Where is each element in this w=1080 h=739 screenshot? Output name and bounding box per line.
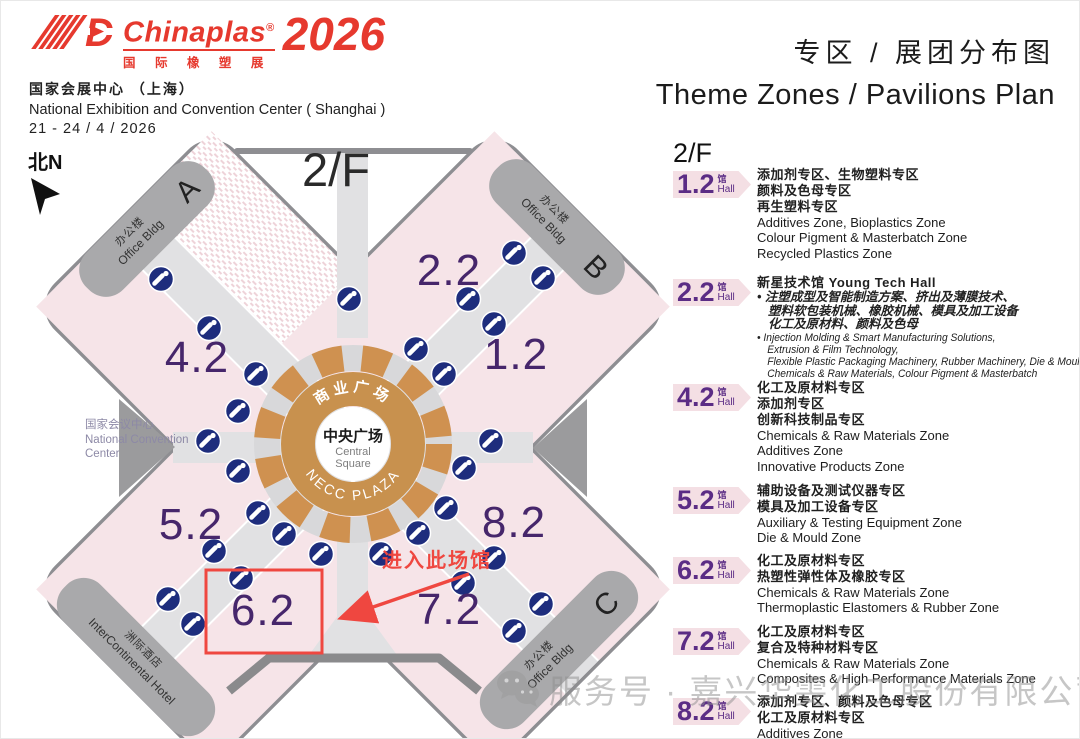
escalator-icon [244, 362, 269, 387]
legend-line: • Injection Molding & Smart Manufacturin… [757, 332, 1064, 344]
hall-number: 4.2 [677, 384, 715, 411]
escalator-icon [432, 362, 457, 387]
hall-unit-zh: 馆 [718, 561, 735, 570]
legend-line: 颜料及色母专区 [757, 183, 1080, 199]
hall-unit-zh: 馆 [718, 632, 735, 641]
hall-unit-en: Hall [718, 500, 735, 511]
escalator-icon [181, 612, 206, 637]
escalator-icon [529, 592, 554, 617]
legend-line: 再生塑料专区 [757, 199, 1080, 215]
hall-number: 2.2 [677, 279, 715, 306]
map-floor-label: 2/F [302, 143, 370, 196]
map-hall-label-6.2: 6.2 [231, 586, 295, 635]
map-hall-label-5.2: 5.2 [159, 500, 223, 549]
legend-line: Chemicals & Raw Materials Zone [757, 656, 1080, 671]
escalator-icon [337, 287, 362, 312]
escalator-icon [272, 522, 297, 547]
hall-unit-en: Hall [718, 570, 735, 581]
escalator-icon [531, 266, 556, 291]
hall-unit-zh: 馆 [718, 175, 735, 184]
map-hall-label-7.2: 7.2 [417, 585, 481, 634]
convention-center-label-en2: Center [85, 448, 120, 460]
legend-line: Innovative Products Zone [757, 459, 1080, 474]
hall-badge: 2.2馆Hall [673, 279, 751, 306]
hall-zone-list: 新星技术馆 Young Tech Hall• 注塑成型及智能制造方案、挤出及薄膜… [757, 275, 1080, 380]
escalator-icon [196, 429, 221, 454]
hall-zone-list: 添加剂专区、颜料及色母专区化工及原材料专区Additives Zone [757, 694, 1080, 739]
hall-badge: 1.2馆Hall [673, 171, 751, 198]
legend-line: Chemicals & Raw Materials Zone [757, 428, 1080, 443]
legend-line: 化工及原材料、颜料及色母 [757, 318, 1080, 332]
hall-unit-en: Hall [718, 711, 735, 722]
escalator-icon [406, 521, 431, 546]
escalator-icon [479, 429, 504, 454]
legend-line: Recycled Plastics Zone [757, 246, 1080, 261]
escalator-icon [149, 267, 174, 292]
legend-line: 创新科技制品专区 [757, 412, 1080, 428]
central-square-label-en1: Central [335, 446, 370, 458]
legend-line: • 注塑成型及智能制造方案、挤出及薄膜技术、 [757, 291, 1080, 305]
central-plaza: 商业广场 NECC PLAZA 中央广场 Central Square [267, 358, 439, 530]
central-square-label-zh: 中央广场 [323, 427, 383, 445]
hall-badge: 5.2馆Hall [673, 487, 751, 514]
legend-line: Colour Pigment & Masterbatch Zone [757, 230, 1080, 245]
hall-number: 5.2 [677, 487, 715, 514]
escalator-icon [226, 399, 251, 424]
escalator-icon [246, 501, 271, 526]
escalator-icon [434, 496, 459, 521]
escalator-icon [404, 337, 429, 362]
legend-line: 添加剂专区、颜料及色母专区 [757, 694, 1080, 710]
map-hall-label-8.2: 8.2 [482, 498, 546, 547]
escalator-icon [309, 542, 334, 567]
legend-line: 塑料软包装机械、橡胶机械、模具及加工设备 [757, 305, 1080, 319]
legend-line: 化工及原材料专区 [757, 380, 1080, 396]
hall-zone-list: 添加剂专区、生物塑料专区颜料及色母专区再生塑料专区Additives Zone,… [757, 167, 1080, 261]
hall-unit-en: Hall [718, 184, 735, 195]
map-hall-label-4.2: 4.2 [165, 333, 229, 382]
legend-line: Additives Zone [757, 726, 1080, 739]
legend-line: Additives Zone [757, 443, 1080, 458]
hall-badge: 4.2馆Hall [673, 384, 751, 411]
legend-line: 辅助设备及测试仪器专区 [757, 483, 1080, 499]
legend-line: Thermoplastic Elastomers & Rubber Zone [757, 600, 1080, 615]
hall-badge: 8.2馆Hall [673, 698, 751, 725]
convention-center-label-zh: 国家会议中心 [85, 417, 154, 431]
legend-floor-label: 2/F [673, 138, 712, 169]
compass-north-arrow-icon [31, 178, 60, 215]
hall-badge: 6.2馆Hall [673, 557, 751, 584]
legend-line: 添加剂专区、生物塑料专区 [757, 167, 1080, 183]
hall-unit-en: Hall [718, 641, 735, 652]
legend-line: Composites & High Performance Materials … [757, 671, 1080, 686]
escalator-icon [156, 587, 181, 612]
map-hall-label-2.2: 2.2 [417, 246, 481, 295]
escalator-icon [452, 456, 477, 481]
hall-badge: 7.2馆Hall [673, 628, 751, 655]
convention-center-label-en1: National Convention [85, 434, 189, 446]
legend-line: Chemicals & Raw Materials Zone [757, 585, 1080, 600]
hall-unit-zh: 馆 [718, 283, 735, 292]
legend-line: 化工及原材料专区 [757, 624, 1080, 640]
hall-zone-list: 化工及原材料专区添加剂专区创新科技制品专区Chemicals & Raw Mat… [757, 380, 1080, 474]
hall-number: 7.2 [677, 628, 715, 655]
hall-zone-list: 辅助设备及测试仪器专区模具及加工设备专区Auxiliary & Testing … [757, 483, 1080, 546]
escalator-icon [502, 241, 527, 266]
hall-unit-en: Hall [718, 397, 735, 408]
legend-line: 添加剂专区 [757, 396, 1080, 412]
hall-unit-en: Hall [718, 292, 735, 303]
compass-label: 北N [28, 151, 62, 174]
hall-number: 6.2 [677, 557, 715, 584]
legend-line: 热塑性弹性体及橡胶专区 [757, 569, 1080, 585]
hall-unit-zh: 馆 [718, 491, 735, 500]
hall-unit-zh: 馆 [718, 388, 735, 397]
hall-number: 1.2 [677, 171, 715, 198]
legend-line: 复合及特种材料专区 [757, 640, 1080, 656]
legend-line: 化工及原材料专区 [757, 553, 1080, 569]
legend-line: Flexible Plastic Packaging Machinery, Ru… [757, 356, 1064, 368]
legend-line: Chemicals & Raw Materials, Colour Pigmen… [757, 368, 1064, 380]
legend-line: Extrusion & Film Technology, [757, 344, 1064, 356]
legend-line: Auxiliary & Testing Equipment Zone [757, 515, 1080, 530]
hall-zone-list: 化工及原材料专区复合及特种材料专区Chemicals & Raw Materia… [757, 624, 1080, 687]
hall-unit-zh: 馆 [718, 702, 735, 711]
central-square-label-en2: Square [335, 458, 370, 470]
escalator-icon [502, 619, 527, 644]
hall-number: 8.2 [677, 698, 715, 725]
legend-line: 化工及原材料专区 [757, 710, 1080, 726]
legend-line: 模具及加工设备专区 [757, 499, 1080, 515]
legend-line: Additives Zone, Bioplastics Zone [757, 215, 1080, 230]
map-hall-label-1.2: 1.2 [484, 330, 548, 379]
hall-zone-list: 化工及原材料专区热塑性弹性体及橡胶专区Chemicals & Raw Mater… [757, 553, 1080, 616]
escalator-icon [226, 459, 251, 484]
legend-line: Die & Mould Zone [757, 530, 1080, 545]
page: 国家会议中心 National Convention Center 商业广场 N… [0, 0, 1080, 739]
annotation-label: 进入此场馆 [382, 548, 492, 572]
legend-line: 新星技术馆 Young Tech Hall [757, 275, 1080, 291]
